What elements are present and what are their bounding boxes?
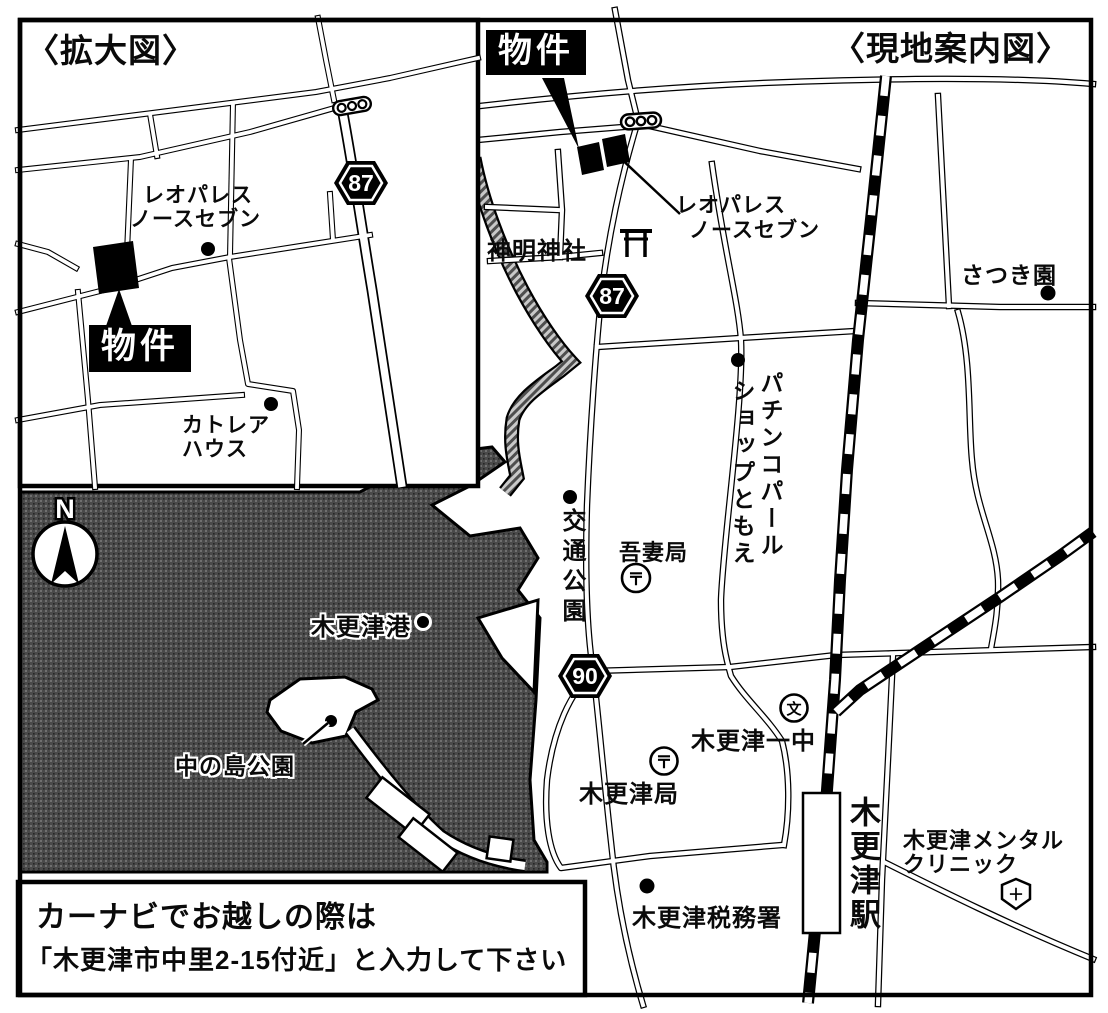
dock-3	[487, 836, 514, 861]
access-map: 87 90 〒 〒 文 ＋ N	[0, 0, 1108, 1013]
school-icon: 文	[781, 695, 808, 722]
azuma-post-mark: 〒	[628, 570, 645, 589]
azuma-post-icon: 〒	[622, 564, 650, 592]
tax-office-dot	[640, 879, 655, 894]
route-90-number: 90	[572, 663, 598, 689]
property-square-inset	[93, 241, 139, 294]
caption-box	[18, 882, 585, 995]
kisarazu-post-mark: 〒	[656, 753, 673, 772]
school-mark: 文	[786, 700, 802, 718]
pachinko-dot	[731, 353, 745, 367]
route-87-number-inset: 87	[348, 170, 374, 196]
compass-n-label: N	[55, 494, 75, 524]
cattleya-dot	[264, 397, 278, 411]
kotsu-koen-dot	[563, 490, 577, 504]
hospital-mark: ＋	[1008, 887, 1024, 904]
station-building	[803, 793, 840, 933]
satsuki-dot	[1041, 286, 1056, 301]
leopalace-dot-inset	[201, 242, 215, 256]
traffic-light-icon-main	[621, 112, 662, 130]
route-87-number: 87	[599, 283, 625, 309]
map-canvas: 87 90 〒 〒 文 ＋ N	[0, 0, 1108, 1013]
kisarazu-post-icon: 〒	[651, 748, 678, 775]
port-dot	[416, 615, 431, 630]
